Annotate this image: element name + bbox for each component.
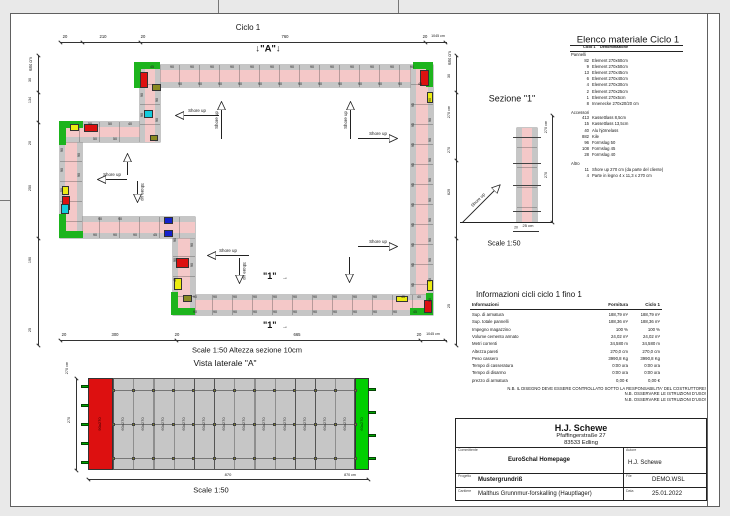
panel-size-label: 90 (156, 98, 160, 102)
panel-size-label: 90 (429, 198, 433, 202)
info-row-value: 188,79 m² (600, 313, 628, 317)
panel-size-label: 90 (61, 168, 65, 172)
title-block-divider (455, 447, 707, 448)
panel-size-label: 90 (429, 178, 433, 182)
shore-up-label: Shore up (369, 240, 387, 244)
panel-size-label: 90 (133, 234, 137, 238)
material-name: Element 270x30cm (592, 83, 628, 87)
panel-size-label: 90 (170, 66, 174, 70)
panel-size-label: 90 (429, 218, 433, 222)
dim-tick (366, 477, 370, 481)
panel-size-label: 90 (273, 296, 277, 300)
material-list-col2: Denominazione (600, 46, 628, 50)
panel-element-olive (150, 135, 158, 141)
tie-dot (112, 389, 115, 392)
tie-dot (314, 389, 317, 392)
shore-up-label: Shore up (242, 262, 246, 280)
tie-dot (354, 423, 357, 426)
panel-size-label: 50 (61, 188, 65, 192)
material-qty: 28 (565, 153, 589, 157)
lateral-panel-label: 60x270 (343, 417, 347, 430)
arrowhead-icon (123, 153, 132, 162)
panel-size-label: 90 (113, 234, 117, 238)
material-name: Element 270x45cm (592, 71, 628, 75)
material-name: Formslag 50 (592, 141, 615, 145)
panel-size-label: 90 (318, 83, 322, 87)
info-row-value: 24,02 m³ (600, 335, 628, 339)
shore-up-arrow: Shore up (341, 101, 353, 139)
date-field-label: Data (626, 490, 633, 494)
panel-size-label: 90 (429, 98, 433, 102)
tie-dot (213, 457, 216, 460)
dim-line (76, 378, 77, 470)
panel-size-label: 50 (113, 138, 117, 142)
dim-label: 20 (63, 35, 68, 39)
dim-label: 270 cm (545, 121, 549, 133)
panel-size-label: 90 (213, 311, 217, 315)
lateral-panel-label: 90x270 (98, 417, 102, 430)
dim-label: 270 cm (448, 106, 452, 118)
shore-up-arrow: Shore up (135, 181, 147, 203)
material-qty: 4 (565, 83, 589, 87)
tie-dot (273, 389, 276, 392)
file-field-value: DEMO.WSL (652, 477, 685, 483)
panel-size-label: 90 (370, 66, 374, 70)
tie-dot (152, 423, 155, 426)
dim-label: 270 cm (66, 362, 70, 374)
material-qty: 2 (565, 90, 589, 94)
panel-element-cyan (61, 204, 69, 214)
panel-size-label: 90 (412, 183, 416, 187)
shore-up-arrow: Shore up (456, 178, 503, 225)
arrow-right-icon: → (282, 275, 288, 281)
company-street: Pfaffingerstraße 27 (556, 434, 605, 440)
panel-size-label: 90 (429, 258, 433, 262)
panel-size-label: 90 (310, 66, 314, 70)
material-qty: 11 (565, 168, 589, 172)
info-row-label: Peso cassero (472, 357, 498, 361)
panel-size-label: 90 (61, 148, 65, 152)
tie-dot (132, 423, 135, 426)
panel-size-label: 90 (253, 311, 257, 315)
panel-size-label: 90 (93, 234, 97, 238)
arrow-tail (358, 246, 391, 247)
lateral-panel-label: 60x270 (242, 417, 246, 430)
panel-size-label: 90 (429, 238, 433, 242)
panel-size-label: 90 (412, 123, 416, 127)
tie-dot (233, 423, 236, 426)
info-row-label: prezzo di armatura (472, 379, 508, 383)
info-row-value: 100 % (632, 328, 660, 332)
dim-line (470, 309, 662, 310)
material-qty: 82 (565, 59, 589, 63)
material-name: Formslag 45 (592, 147, 615, 151)
panel-size-label: 90 (373, 296, 377, 300)
dim-line (552, 115, 553, 222)
lateral-panel-label: 60x270 (283, 417, 287, 430)
panel-size-label: 90 (429, 158, 433, 162)
panel-size-label: 40 (128, 123, 132, 127)
project-field-label: Progetto (458, 475, 471, 479)
material-group-name: Pannelli (571, 53, 586, 57)
tie-pin (368, 457, 376, 460)
panel-size-label: 90 (293, 311, 297, 315)
tie-dot (293, 423, 296, 426)
shore-up-label: Shore up (344, 111, 348, 129)
formwork-drawing-sheet: 4590909090909090909090909090909090909090… (0, 0, 730, 516)
material-list-title: Elenco materiale Ciclo 1 (577, 35, 679, 45)
panel-size-label: 90 (218, 83, 222, 87)
info-row-value: 24,02 m³ (632, 335, 660, 339)
dim-line (513, 163, 541, 164)
shore-up-arrow: Shore up (212, 101, 224, 139)
tie-dot (233, 457, 236, 460)
shore-up-arrow (347, 257, 359, 283)
dim-label: 134 (29, 97, 33, 103)
dim-label: 210 (100, 35, 107, 39)
dim-line (513, 211, 541, 212)
panel-size-label: 90 (313, 296, 317, 300)
info-row-label: Volume cemento armato (472, 335, 519, 339)
site-field-value: Malthus Grunnmur-forskalling (Hauptlager… (478, 491, 592, 497)
file-field-label: File (626, 475, 632, 479)
material-qty: 96 (565, 141, 589, 145)
dim-line (88, 479, 368, 480)
panel-size-label: 50 (108, 123, 112, 127)
tie-dot (152, 389, 155, 392)
tie-dot (132, 457, 135, 460)
panel-size-label: 45 (418, 83, 422, 87)
dim-line (38, 55, 39, 345)
dim-label: 20 (175, 333, 180, 337)
panel-size-label: 90 (333, 296, 337, 300)
arrowhead-icon (217, 101, 226, 110)
material-qty: 882 (565, 135, 589, 139)
shore-up-label: Shore up (369, 132, 387, 136)
dim-line (513, 137, 541, 138)
author-field-value: H.J. Schewe (628, 460, 662, 466)
tie-dot (152, 457, 155, 460)
tie-dot (233, 389, 236, 392)
panel-size-label: 45 (153, 234, 157, 238)
section-view-caption: Scale 1:50 (487, 241, 520, 248)
material-name: Element 270x50cm (592, 65, 628, 69)
dim-label: 250 (29, 185, 33, 191)
panel-size-label: 90 (253, 296, 257, 300)
arrow-right-icon: → (282, 324, 288, 330)
panel-size-label: 45 (150, 66, 154, 70)
tie-dot (314, 457, 317, 460)
tie-dot (172, 457, 175, 460)
tie-dot (273, 457, 276, 460)
panel-size-label: 90 (393, 311, 397, 315)
tie-pin (81, 461, 89, 464)
panel-size-label: 90 (298, 83, 302, 87)
info-row-value: 188,36 m² (600, 320, 628, 324)
tie-dot (112, 423, 115, 426)
dim-label: 20 (141, 35, 146, 39)
info-row-value: 0,00 € (600, 379, 628, 383)
lateral-panel-label: 60x270 (262, 417, 266, 430)
dim-label: 684 cm (448, 51, 452, 65)
lateral-panel-label: 60x270 (323, 417, 327, 430)
lateral-panel-label: 60x270 (303, 417, 307, 430)
info-row-label: Altezza pareti (472, 350, 498, 354)
dim-label: 20 (62, 333, 67, 337)
info-row-label: Sup. di armatura (472, 313, 504, 317)
lateral-panel-label: 60x270 (202, 417, 206, 430)
material-qty: 108 (565, 147, 589, 151)
panel-size-label: 90 (350, 66, 354, 70)
tie-dot (354, 457, 357, 460)
panel-size-label: 90 (258, 83, 262, 87)
material-name: Innenecke 270x20/20 cm (592, 102, 639, 106)
dim-label: 20 (423, 35, 428, 39)
corner-element-green (59, 214, 83, 238)
material-qty: 6 (565, 77, 589, 81)
panel-size-label: 90 (78, 153, 82, 157)
shore-up-label: Shore up (215, 111, 219, 129)
arrowhead-icon (389, 134, 398, 143)
panel-element-blue (164, 230, 173, 237)
section-wall-column (517, 128, 537, 222)
info-row-value: 270,0 cm (600, 350, 628, 354)
panel-size-label: 90 (193, 311, 197, 315)
info-row-value: 34,580 m (632, 342, 660, 346)
material-name: Element 270x25cm (592, 90, 628, 94)
dim-label: 760 (282, 35, 289, 39)
info-row-value: 188,36 m² (632, 320, 660, 324)
title-block-divider (455, 473, 707, 474)
dim-line (513, 231, 539, 232)
tie-dot (172, 423, 175, 426)
dim-label: 20 (417, 333, 422, 337)
panel-size-label: 90 (330, 66, 334, 70)
dim-label: 20 (514, 226, 518, 229)
title-block-divider (455, 487, 707, 488)
section-1-marker: "1" (263, 321, 277, 330)
tie-dot (314, 423, 317, 426)
lateral-panel-label: 60x270 (360, 417, 364, 430)
info-row-label: Sup. totale pannelli (472, 320, 509, 324)
dim-line (456, 55, 457, 345)
dim-label: 30 (448, 74, 452, 78)
tie-pin (368, 434, 376, 437)
panel-size-label: 90 (118, 218, 122, 222)
panel-element-red (176, 258, 189, 268)
info-row-value: 0,00 € (632, 379, 660, 383)
shore-up-label: Shore up (140, 183, 144, 201)
panel-size-label: 90 (191, 243, 195, 247)
shore-up-label: Shore up (188, 109, 206, 113)
panel-size-label: 90 (412, 243, 416, 247)
dim-label: 25 (29, 328, 33, 332)
panel-element-cyan (144, 110, 153, 118)
panel-size-label: 90 (198, 83, 202, 87)
material-qty: 4 (565, 174, 589, 178)
panel-size-label: 90 (410, 66, 414, 70)
section-view-title: Sezione "1" (489, 95, 535, 104)
panel-size-label: 90 (250, 66, 254, 70)
tie-dot (192, 389, 195, 392)
panel-size-label: 90 (390, 66, 394, 70)
dim-label: 270 (545, 172, 549, 178)
lateral-panel-label: 60x270 (161, 417, 165, 430)
date-field-value: 25.01.2022 (652, 491, 682, 497)
info-row-value: 0:00 ora (600, 371, 628, 375)
tie-dot (253, 389, 256, 392)
panel-size-label: 90 (333, 311, 337, 315)
panel-size-label: 90 (429, 118, 433, 122)
tie-dot (172, 389, 175, 392)
info-row-label: Tempo di disarmo (472, 371, 506, 375)
dim-label: 1045 cm (431, 35, 445, 39)
plan-title: Ciclo 1 (236, 24, 260, 32)
material-name: Shore up 270 cm (da parte del cliente) (592, 168, 663, 172)
dim-label: 25 (448, 304, 452, 308)
material-name: Element 270x40cm (592, 77, 628, 81)
info-row-value: 3990,8 Kg (600, 357, 628, 361)
info-row-value: 3990,8 Kg (632, 357, 660, 361)
dim-label: 1045 cm (426, 333, 440, 337)
tie-dot (354, 389, 357, 392)
panel-size-label: 90 (233, 296, 237, 300)
material-group-name: Altro (571, 162, 580, 166)
info-row-value: 100 % (600, 328, 628, 332)
material-qty: 13 (565, 71, 589, 75)
arrow-tail (221, 108, 222, 139)
material-name: Parte in legno 4 x 11,3 x 270 cm (592, 174, 652, 178)
panel-size-label: 90 (230, 66, 234, 70)
arrow-tail (350, 108, 351, 139)
panel-size-label: 90 (412, 103, 416, 107)
tie-dot (273, 423, 276, 426)
panel-size-label: 90 (293, 296, 297, 300)
material-qty: 15 (565, 122, 589, 126)
dim-line (60, 340, 447, 341)
author-field-label: Autore (626, 449, 636, 453)
company-name: H.J. Schewe (555, 424, 608, 433)
info-col-header: Fornitura (600, 303, 628, 308)
dim-label: 870 (225, 473, 232, 477)
material-name: Kassettlass 8,5cm (592, 116, 626, 120)
shore-up-arrow: Shore up (207, 246, 249, 258)
site-field-label: Cantiere (458, 490, 471, 494)
dim-label: 270 (448, 147, 452, 153)
section-a-marker: ↓"A"↓ (255, 44, 280, 54)
panel-size-label: 90 (233, 311, 237, 315)
panel-size-label: 90 (429, 138, 433, 142)
panel-size-label: 90 (358, 83, 362, 87)
panel-size-label: 90 (429, 298, 433, 302)
dim-label: 629 (448, 189, 452, 195)
info-row-label: Impegno magazzino (472, 328, 511, 332)
material-name: Kile (592, 135, 599, 139)
panel-size-label: 90 (141, 113, 145, 117)
dim-label: 30 (29, 78, 33, 82)
panel-size-label: 90 (313, 311, 317, 315)
panel-size-label: 90 (412, 223, 416, 227)
tie-pin (81, 442, 89, 445)
info-row-value: 270,0 cm (632, 350, 660, 354)
info-row-value: 188,79 m² (632, 313, 660, 317)
panel-size-label: 90 (278, 83, 282, 87)
dim-line (60, 42, 447, 43)
panel-size-label: 90 (378, 83, 382, 87)
shore-up-arrow: Shore up (358, 129, 398, 141)
section-1-marker: "1" (263, 272, 277, 281)
tie-dot (334, 423, 337, 426)
material-qty: 413 (565, 116, 589, 120)
lateral-view-title: Vista laterale "A" (193, 359, 256, 368)
info-col-header: Informazioni (472, 303, 499, 308)
notice-text: N.B. OSSERVARE LE ISTRUZIONI D'USO! (450, 392, 706, 396)
material-list-col1: Ciclo 1 (583, 46, 595, 50)
tie-dot (334, 389, 337, 392)
dim-label: 684 cm (29, 57, 33, 71)
material-qty: 1 (565, 96, 589, 100)
arrowhead-icon (345, 274, 354, 283)
tie-dot (112, 457, 115, 460)
panel-size-label: 50 (88, 123, 92, 127)
info-row-label: Metri correnti (472, 342, 497, 346)
tie-pin (81, 423, 89, 426)
panel-size-label: 45 (413, 311, 417, 315)
arrowhead-icon (346, 101, 355, 110)
tie-dot (192, 423, 195, 426)
panel-size-label: 45 (401, 296, 405, 300)
info-row-value: 34,580 m (600, 342, 628, 346)
project-field-value: Mustergrundriß (478, 477, 522, 483)
panel-size-label: 90 (174, 238, 178, 242)
lateral-panel-label: 60x270 (141, 417, 145, 430)
panel-size-label: 90 (412, 263, 416, 267)
info-row-value: 0:00 ora (632, 371, 660, 375)
tie-pin (368, 411, 376, 414)
tie-dot (253, 423, 256, 426)
panel-size-label: 45 (174, 278, 178, 282)
panel-element-blue (164, 217, 173, 224)
panel-size-label: 90 (412, 283, 416, 287)
panel-element-olive (152, 84, 161, 91)
info-row-value: 0:00 ora (600, 364, 628, 368)
panel-size-label: 90 (210, 66, 214, 70)
panel-size-label: 90 (141, 93, 145, 97)
material-name: Element 270x5cm (592, 96, 626, 100)
arrow-tail (214, 255, 249, 256)
tie-dot (213, 423, 216, 426)
panel-size-label: 90 (178, 83, 182, 87)
cycle-info-title: Informazioni cicli ciclo 1 fino 1 (476, 291, 582, 299)
panel-element-red (140, 72, 148, 88)
plan-caption: Scale 1:50 Altezza sezione 10cm (192, 346, 302, 354)
panel-size-label: 90 (213, 296, 217, 300)
tie-dot (293, 389, 296, 392)
dim-label: 665 (294, 333, 301, 337)
arrow-tail (127, 160, 128, 175)
lateral-panel-label: 60x270 (182, 417, 186, 430)
dim-line (570, 51, 683, 52)
lateral-view-caption: Scale 1:50 (193, 486, 228, 494)
tie-pin (368, 388, 376, 391)
dim-label: 190 (29, 257, 33, 263)
company-city: 83533 Edling (564, 441, 598, 447)
panel-size-label: 90 (429, 278, 433, 282)
lateral-panel-label: 60x270 (121, 417, 125, 430)
material-name: Formslag 40 (592, 153, 615, 157)
notice-text: N.B. OSSERVARE LE ISTRUZIONI D'USO! (450, 398, 706, 402)
panel-size-label: 90 (270, 66, 274, 70)
